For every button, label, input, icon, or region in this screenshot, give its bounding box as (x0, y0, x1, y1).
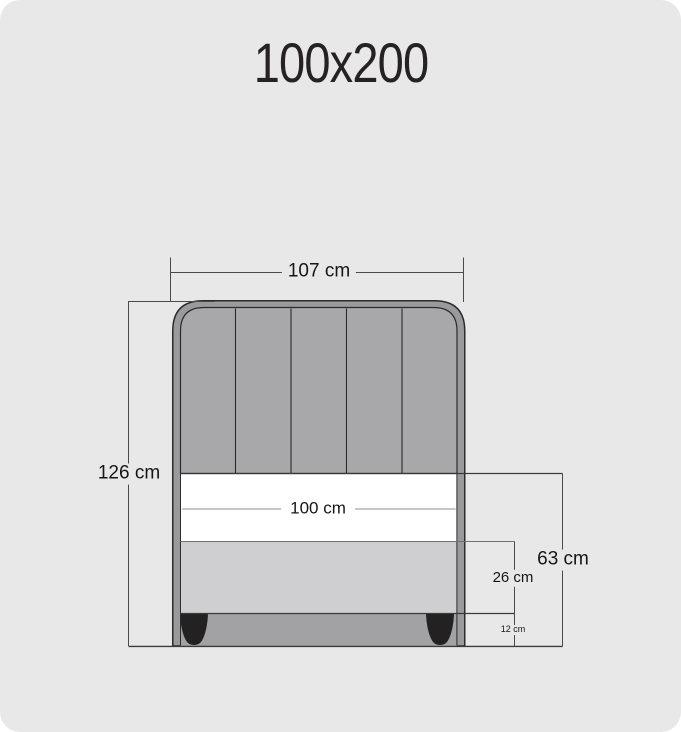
bed-diagram (0, 0, 681, 732)
foot-recess (181, 614, 458, 647)
dim-mattress-width-label: 100 cm (281, 500, 355, 519)
dim-leg-height-label: 12 cm (497, 625, 530, 635)
headboard-panel (181, 308, 458, 474)
page-background: 100x200 (0, 0, 681, 732)
dim-side-height-label: 63 cm (531, 550, 595, 571)
dim-outer-width-label: 107 cm (282, 262, 356, 283)
dim-total-height-label: 126 cm (92, 464, 166, 485)
bed-base (181, 542, 458, 614)
dim-base-height-label: 26 cm (488, 570, 539, 587)
